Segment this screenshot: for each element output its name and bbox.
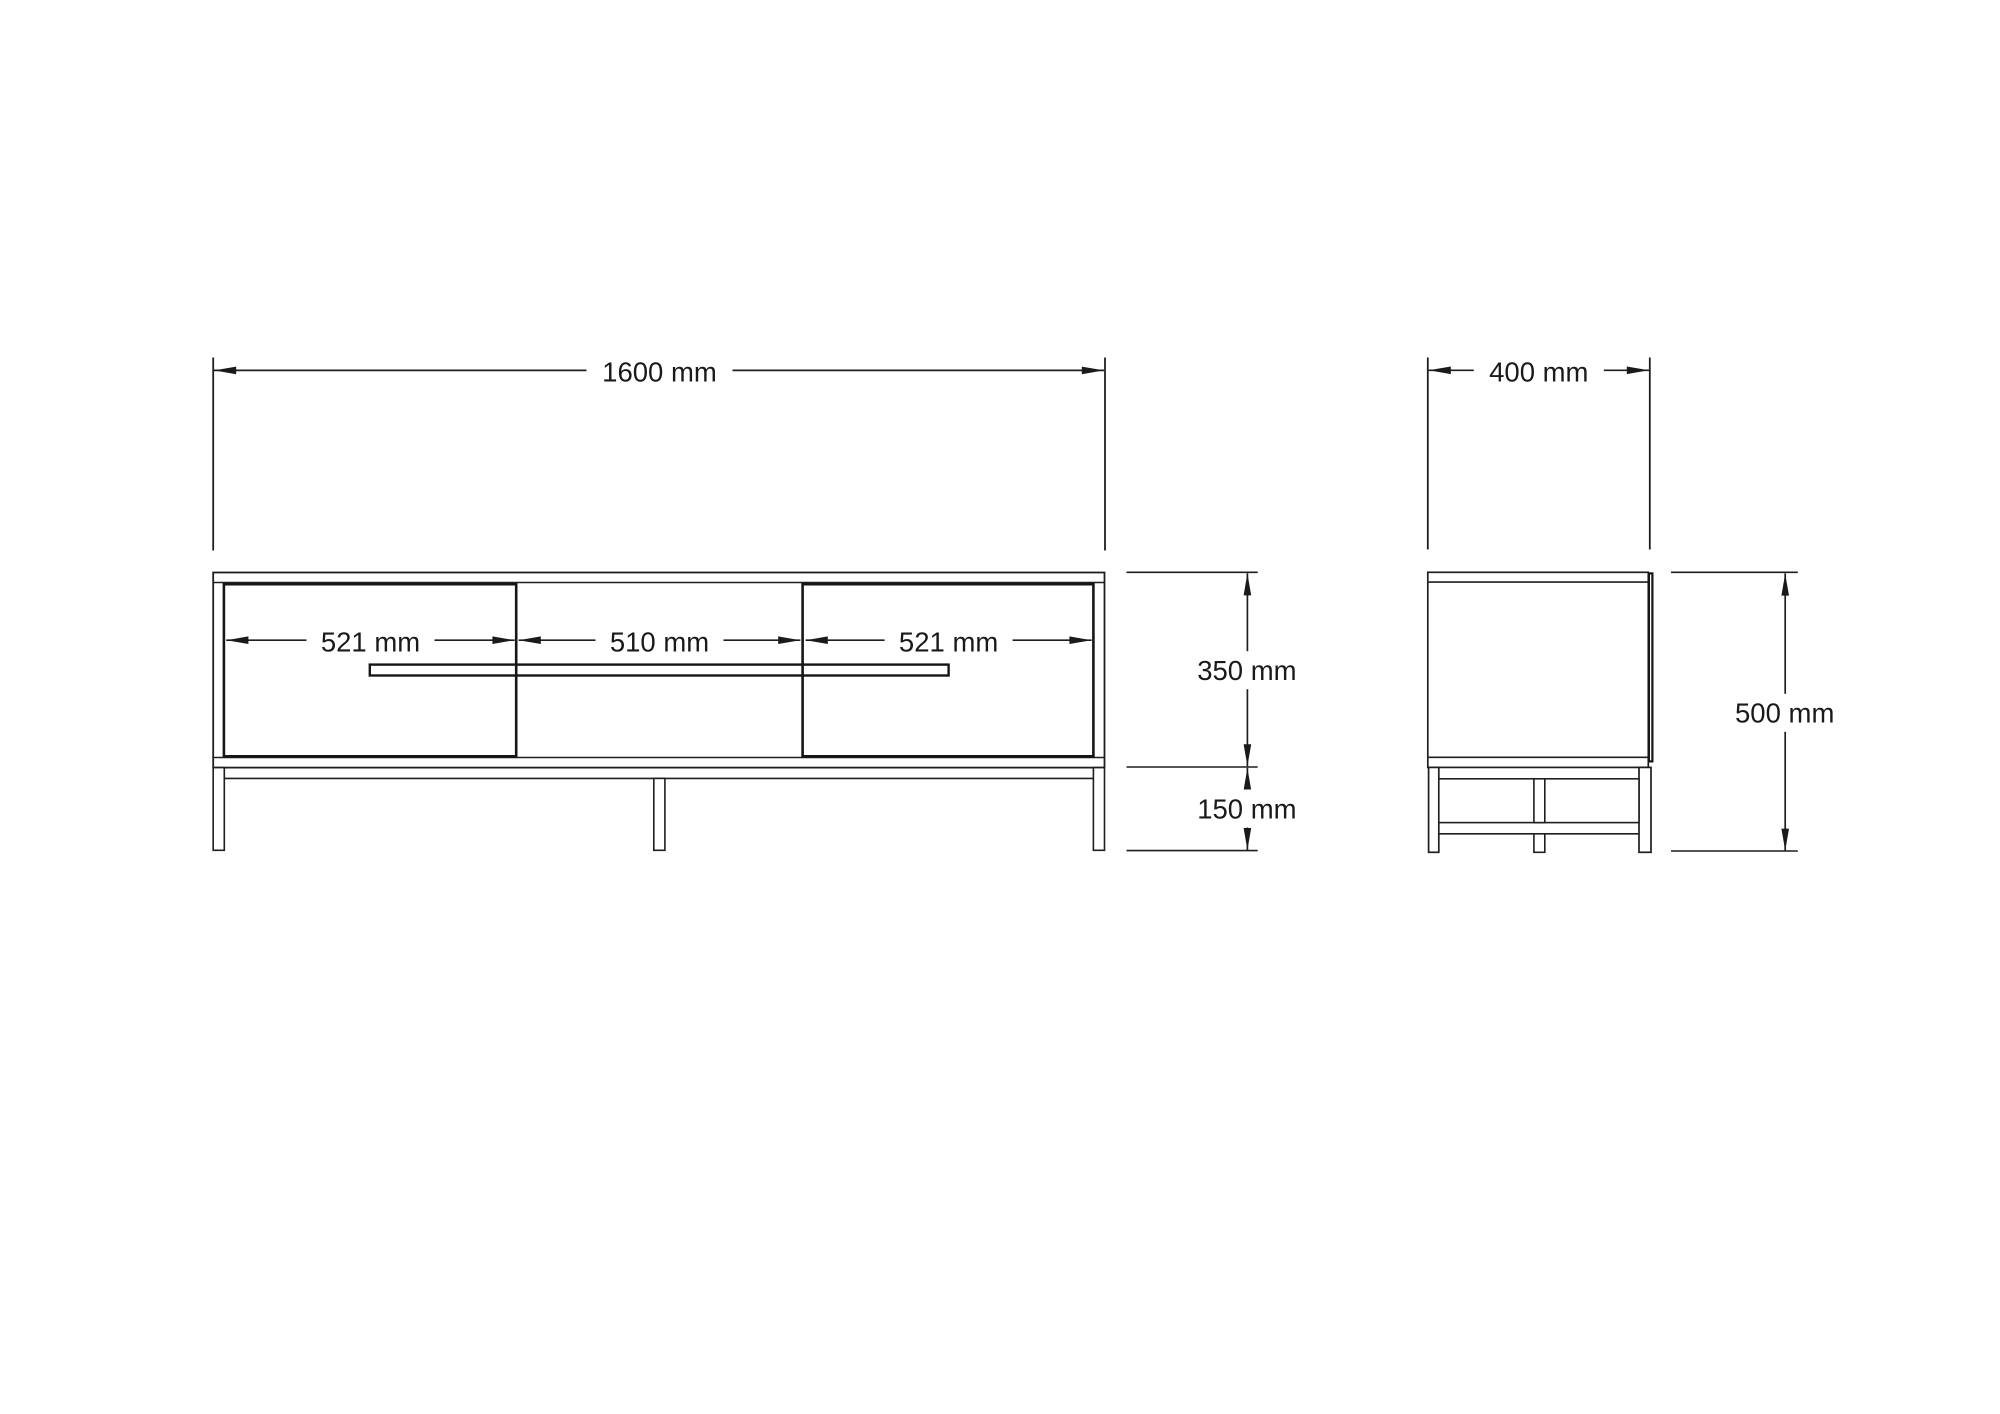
svg-text:521 mm: 521 mm — [321, 627, 420, 658]
svg-text:350 mm: 350 mm — [1197, 655, 1296, 686]
svg-text:521 mm: 521 mm — [899, 627, 998, 658]
svg-text:510 mm: 510 mm — [610, 627, 709, 658]
svg-text:150 mm: 150 mm — [1197, 793, 1296, 824]
svg-text:400 mm: 400 mm — [1489, 357, 1588, 388]
svg-text:500 mm: 500 mm — [1735, 698, 1834, 729]
svg-text:1600 mm: 1600 mm — [602, 357, 717, 388]
